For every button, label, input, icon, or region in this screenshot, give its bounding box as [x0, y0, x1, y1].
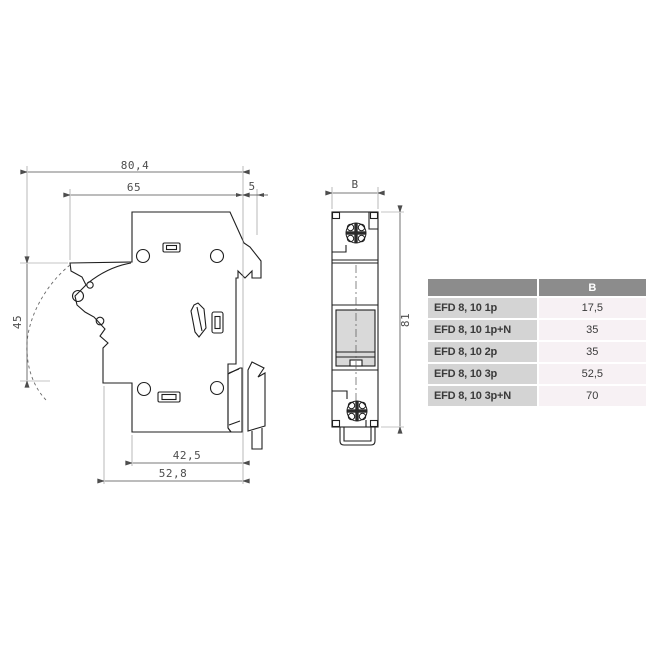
side-screw-hole-icon: [211, 382, 224, 395]
dim-arrow: [236, 193, 243, 197]
dim-base-width: 42,5: [173, 449, 202, 462]
front-corner-foot: [333, 421, 340, 427]
vent-slot-icon: [163, 243, 180, 252]
table-row: EFD 8, 10 2p 35: [428, 342, 646, 363]
width-value: 70: [539, 386, 646, 407]
table-row: EFD 8, 10 1p 17,5: [428, 298, 646, 319]
dim-handle-travel: 45: [11, 315, 24, 329]
dim-height-81: 81: [399, 313, 412, 327]
front-corner-foot: [371, 421, 378, 427]
dim-rail-clearance: 5: [248, 180, 255, 193]
width-value: 35: [539, 342, 646, 363]
handle-pivot-icon: [73, 291, 84, 302]
terminal-step-line: [333, 245, 347, 252]
table-row: EFD 8, 10 1p+N 35: [428, 320, 646, 341]
handle-spring-line: [88, 263, 131, 283]
product-name: EFD 8, 10 1p+N: [428, 320, 537, 341]
side-view: [70, 212, 265, 449]
bottom-clip-inner: [344, 427, 371, 441]
product-name: EFD 8, 10 2p: [428, 342, 537, 363]
phillips-screw-icon: [347, 401, 367, 421]
side-screw-hole-icon: [138, 383, 151, 396]
vent-slot-icon: [158, 392, 180, 402]
width-table: B EFD 8, 10 1p 17,5 EFD 8, 10 1p+N 35 EF…: [428, 279, 646, 408]
width-value: 35: [539, 320, 646, 341]
vent-slot-inner: [167, 246, 177, 250]
din-rail-hook: [248, 362, 265, 431]
side-slot-inner: [215, 317, 220, 329]
front-divider-lines: [332, 260, 378, 263]
product-name: EFD 8, 10 3p: [428, 364, 537, 385]
dim-lower-depth: 52,8: [159, 467, 188, 480]
product-name: EFD 8, 10 3p+N: [428, 386, 537, 407]
fuse-carrier-window: [336, 310, 375, 366]
table-header-b: B: [539, 279, 646, 296]
width-value: 52,5: [539, 364, 646, 385]
latch-blade-line: [197, 307, 202, 331]
table-row: EFD 8, 10 3p+N 70: [428, 386, 646, 407]
product-name: EFD 8, 10 1p: [428, 298, 537, 319]
front-corner-foot: [371, 213, 378, 219]
handle-pin-icon: [87, 282, 93, 288]
dim-width-b: B: [351, 178, 358, 191]
din-clip-foot: [252, 428, 262, 449]
front-corner-foot: [333, 213, 340, 219]
terminal-step-line: [333, 391, 348, 399]
bottom-clip-outer: [340, 427, 375, 445]
dim-total-depth: 80,4: [121, 159, 150, 172]
table-header-product: [428, 279, 537, 296]
width-value: 17,5: [539, 298, 646, 319]
side-slot-icon: [212, 312, 223, 333]
phillips-screw-icon: [346, 223, 366, 243]
page: 80,4 65 5 45 42,5 52,8 B 81 B EFD 8, 10 …: [0, 0, 650, 650]
din-clip-tick: [229, 369, 240, 425]
latch-blade-icon: [191, 303, 206, 337]
table-header-row: B: [428, 279, 646, 296]
dim-body-depth: 65: [127, 181, 141, 194]
table-row: EFD 8, 10 3p 52,5: [428, 364, 646, 385]
handle-swing-arc: [27, 265, 70, 401]
vent-slot-inner: [162, 395, 176, 400]
dim-arrow: [257, 193, 264, 197]
side-screw-hole-icon: [137, 250, 150, 263]
side-screw-hole-icon: [211, 250, 224, 263]
